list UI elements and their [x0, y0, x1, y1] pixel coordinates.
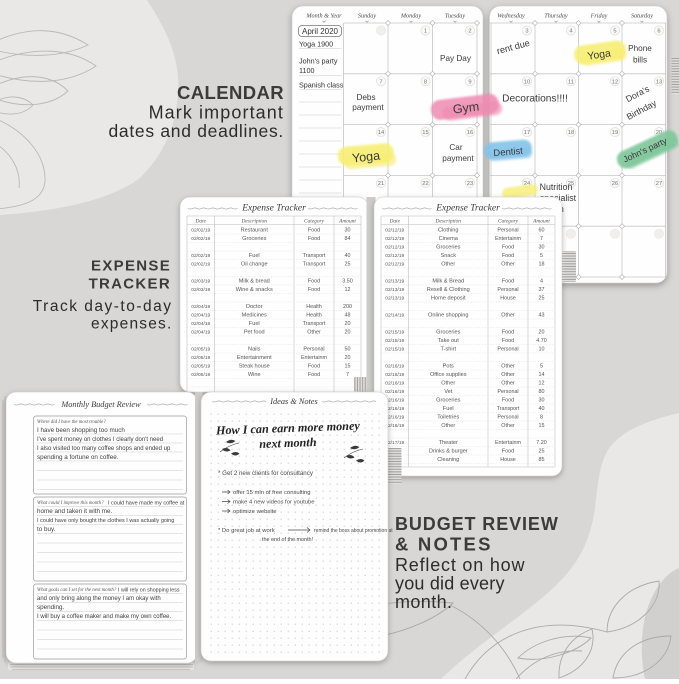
svg-text:4: 4	[540, 279, 543, 285]
svg-text:optimize website: optimize website	[233, 509, 277, 515]
svg-text:House: House	[500, 296, 516, 302]
svg-text:5: 5	[540, 364, 543, 370]
svg-text:Clothing: Clothing	[438, 228, 459, 234]
svg-text:02/16/19: 02/16/19	[385, 372, 404, 378]
svg-text:5: 5	[613, 29, 616, 35]
svg-text:7.20: 7.20	[536, 440, 547, 446]
svg-text:payment: payment	[442, 154, 474, 163]
svg-text:I've spent money on clothes I: I've spent money on clothes I clearly do…	[37, 437, 163, 443]
svg-text:4.70: 4.70	[536, 338, 547, 344]
svg-text:Other: Other	[501, 372, 515, 378]
svg-text:Decorations!!!!: Decorations!!!!	[502, 94, 568, 105]
svg-text:John's party: John's party	[299, 57, 338, 66]
svg-text:I also visited too many coffee: I also visited too many coffee shops and…	[37, 446, 171, 452]
svg-text:BUDGET REVIEW: BUDGET REVIEW	[395, 514, 559, 534]
svg-text:CALENDAR: CALENDAR	[177, 82, 284, 103]
svg-text:02/05/19: 02/05/19	[191, 347, 210, 353]
svg-text:60: 60	[539, 228, 545, 234]
svg-text:02/04/19: 02/04/19	[191, 304, 210, 310]
svg-text:30: 30	[539, 245, 545, 251]
svg-text:Monthly Budget Review: Monthly Budget Review	[60, 400, 141, 409]
svg-text:Entertainment: Entertainment	[237, 355, 272, 361]
svg-text:26: 26	[612, 181, 618, 187]
svg-text:1100: 1100	[299, 66, 314, 75]
svg-text:Debs: Debs	[356, 93, 375, 102]
svg-text:Steak house: Steak house	[239, 364, 270, 370]
svg-text:50: 50	[345, 347, 351, 353]
svg-text:Transport: Transport	[303, 253, 326, 259]
svg-text:House: House	[500, 457, 516, 463]
svg-text:next month: next month	[259, 435, 317, 451]
svg-text:Month & Year: Month & Year	[305, 13, 342, 20]
svg-text:home and taken it with me.: home and taken it with me.	[37, 508, 113, 515]
svg-text:I will buy a coffee maker and: I will buy a coffee maker and make my ow…	[37, 614, 172, 620]
svg-text:spending.: spending.	[37, 604, 65, 611]
svg-text:Other: Other	[501, 313, 515, 319]
svg-text:Other: Other	[307, 330, 321, 336]
svg-text:Health: Health	[306, 313, 322, 319]
svg-text:Description: Description	[241, 218, 268, 224]
svg-text:02/16/19: 02/16/19	[385, 364, 404, 370]
svg-text:02/12/19: 02/12/19	[385, 228, 404, 234]
svg-text:200: 200	[343, 304, 352, 310]
svg-text:02/05/19: 02/05/19	[191, 355, 210, 361]
svg-text:7: 7	[346, 372, 349, 378]
svg-text:Reflect on how: Reflect on how	[395, 555, 525, 575]
svg-text:I will rely on shopping less: I will rely on shopping less	[118, 588, 180, 594]
svg-text:Nails: Nails	[248, 347, 261, 353]
svg-text:20: 20	[345, 321, 351, 327]
svg-text:25: 25	[539, 296, 545, 302]
svg-text:T-shirt: T-shirt	[440, 347, 456, 353]
svg-text:EXPENSE: EXPENSE	[91, 258, 171, 275]
svg-text:Groceries: Groceries	[242, 236, 266, 242]
svg-text:14: 14	[378, 130, 385, 136]
svg-text:02/14/19: 02/14/19	[385, 313, 404, 319]
svg-text:3: 3	[525, 29, 528, 35]
svg-text:13: 13	[656, 79, 662, 85]
svg-text:I have been shopping too much: I have been shopping too much	[37, 427, 125, 434]
svg-text:Resell & Clothing: Resell & Clothing	[427, 287, 470, 293]
svg-text:Expense Tracker: Expense Tracker	[435, 204, 500, 214]
svg-text:Yoga 1900: Yoga 1900	[299, 40, 333, 49]
svg-text:Date: Date	[389, 218, 401, 224]
svg-text:02/13/19: 02/13/19	[385, 287, 404, 293]
svg-text:18: 18	[568, 130, 574, 136]
svg-text:Fuel: Fuel	[443, 406, 454, 412]
svg-text:the end of the month!: the end of the month!	[262, 537, 313, 543]
svg-text:Category: Category	[498, 218, 519, 224]
svg-text:Office supplies: Office supplies	[430, 372, 467, 378]
svg-text:Medicines: Medicines	[242, 313, 267, 319]
svg-text:Other: Other	[501, 364, 515, 370]
svg-text:Yoga: Yoga	[351, 149, 380, 166]
svg-text:Other: Other	[441, 262, 455, 268]
svg-text:02/13/19: 02/13/19	[385, 296, 404, 302]
svg-text:Home deposit: Home deposit	[431, 296, 466, 302]
svg-text:02/02/19: 02/02/19	[191, 253, 210, 259]
svg-text:02/13/19: 02/13/19	[385, 279, 404, 285]
svg-text:spending a fortune on coffee.: spending a fortune on coffee.	[37, 454, 119, 461]
svg-text:& NOTES: & NOTES	[395, 534, 493, 555]
svg-text:Date: Date	[195, 218, 207, 224]
svg-text:Cleaning: Cleaning	[437, 457, 459, 463]
svg-text:23: 23	[467, 181, 473, 187]
svg-text:Theater: Theater	[439, 440, 458, 446]
svg-text:80: 80	[539, 389, 545, 395]
svg-text:Entertainm: Entertainm	[495, 440, 522, 446]
svg-text:02/15/19: 02/15/19	[385, 347, 404, 353]
svg-text:I could have only bought the c: I could have only bought the clothes I w…	[37, 518, 174, 524]
svg-text:Expense Tracker: Expense Tracker	[241, 204, 306, 214]
svg-text:Mark important: Mark important	[149, 103, 284, 123]
svg-text:02/05/19: 02/05/19	[191, 372, 210, 378]
svg-text:19: 19	[612, 130, 618, 136]
svg-text:02/15/19: 02/15/19	[385, 338, 404, 344]
svg-text:Milk & bread: Milk & bread	[239, 279, 270, 285]
svg-text:02/16/19: 02/16/19	[385, 389, 404, 395]
svg-text:Take out: Take out	[438, 338, 460, 344]
svg-text:20: 20	[539, 330, 545, 336]
svg-text:02/05/19: 02/05/19	[191, 364, 210, 370]
svg-text:30: 30	[345, 228, 351, 234]
svg-text:30: 30	[539, 398, 545, 404]
svg-text:Wine & snacks: Wine & snacks	[236, 287, 273, 293]
svg-text:What could I improve this mont: What could I improve this month?	[37, 501, 104, 506]
svg-text:Doctor: Doctor	[246, 304, 263, 310]
svg-text:Personal: Personal	[497, 389, 518, 395]
svg-text:1: 1	[424, 29, 427, 35]
svg-text:20: 20	[345, 355, 351, 361]
svg-text:02/02/19: 02/02/19	[191, 236, 210, 242]
svg-text:Restaurant: Restaurant	[241, 228, 269, 234]
svg-text:85: 85	[539, 457, 545, 463]
svg-text:12: 12	[539, 381, 545, 387]
svg-text:Food: Food	[308, 228, 320, 234]
svg-text:16: 16	[467, 130, 473, 136]
svg-text:Food: Food	[502, 330, 514, 336]
svg-text:02/16/19: 02/16/19	[385, 381, 404, 387]
svg-text:Other: Other	[441, 423, 455, 429]
svg-text:Amount: Amount	[532, 218, 550, 224]
svg-text:Milk & Bread: Milk & Bread	[432, 279, 464, 285]
svg-text:Thursday: Thursday	[544, 13, 568, 20]
svg-text:Wednesday: Wednesday	[497, 13, 525, 20]
svg-text:Food: Food	[502, 245, 514, 251]
svg-text:Food: Food	[308, 364, 320, 370]
svg-text:9: 9	[468, 79, 471, 85]
svg-text:25: 25	[345, 262, 351, 268]
svg-text:Transport: Transport	[303, 262, 326, 268]
svg-text:7: 7	[379, 79, 382, 85]
svg-text:6: 6	[657, 29, 660, 35]
svg-text:Sunday: Sunday	[358, 13, 376, 20]
svg-text:Amount: Amount	[338, 218, 356, 224]
svg-text:Personal: Personal	[497, 228, 518, 234]
svg-text:3.50: 3.50	[342, 279, 353, 285]
svg-text:TRACKER: TRACKER	[89, 276, 171, 293]
svg-text:offer 15 min of free consultin: offer 15 min of free consulting	[233, 490, 311, 496]
svg-text:22: 22	[422, 181, 428, 187]
svg-text:Groceries: Groceries	[436, 398, 460, 404]
svg-text:Toiletries: Toiletries	[437, 415, 459, 421]
svg-text:Other: Other	[501, 262, 515, 268]
svg-text:Cinema: Cinema	[439, 236, 459, 242]
svg-text:Online shopping: Online shopping	[428, 313, 468, 319]
svg-text:20: 20	[345, 330, 351, 336]
svg-text:40: 40	[539, 406, 545, 412]
svg-text:Food: Food	[308, 287, 320, 293]
svg-text:Other: Other	[501, 423, 515, 429]
svg-text:40: 40	[345, 253, 351, 259]
svg-text:and only bring along the money: and only bring along the money I am okay…	[37, 596, 161, 602]
svg-text:14: 14	[539, 372, 545, 378]
svg-text:make 4 new videos for youtube: make 4 new videos for youtube	[233, 500, 315, 506]
svg-text:11: 11	[568, 79, 574, 85]
svg-text:02/03/19: 02/03/19	[191, 279, 210, 285]
svg-text:15: 15	[422, 130, 428, 136]
svg-text:* Get 2 new clients for consul: * Get 2 new clients for consultancy	[218, 470, 314, 477]
svg-text:Personal: Personal	[497, 287, 518, 293]
svg-text:15: 15	[345, 364, 351, 370]
svg-text:Vet: Vet	[444, 389, 453, 395]
svg-text:Groceries: Groceries	[436, 245, 460, 251]
svg-text:you did every: you did every	[395, 574, 505, 594]
svg-text:15: 15	[539, 423, 545, 429]
svg-text:Category: Category	[304, 218, 325, 224]
svg-text:Saturday: Saturday	[631, 13, 653, 20]
svg-text:payment: payment	[352, 103, 384, 112]
svg-text:02/12/19: 02/12/19	[385, 262, 404, 268]
svg-text:Food: Food	[502, 398, 514, 404]
svg-text:02/04/19: 02/04/19	[191, 321, 210, 327]
svg-text:Other: Other	[501, 381, 515, 387]
svg-text:43: 43	[539, 313, 545, 319]
svg-text:Personal: Personal	[303, 347, 324, 353]
svg-text:Tuesday: Tuesday	[445, 13, 466, 20]
svg-text:remind the boss about promotio: remind the boss about promotion at	[314, 528, 393, 534]
svg-text:02/03/19: 02/03/19	[191, 287, 210, 293]
svg-text:I could have made my coffee at: I could have made my coffee at	[108, 501, 185, 507]
svg-text:25: 25	[539, 449, 545, 455]
svg-text:Entertainm: Entertainm	[495, 236, 522, 242]
svg-text:Transport: Transport	[303, 321, 326, 327]
svg-text:expenses.: expenses.	[91, 316, 172, 333]
svg-text:Description: Description	[435, 218, 462, 224]
svg-text:Drinks & burger: Drinks & burger	[429, 449, 468, 455]
svg-text:Friday: Friday	[590, 13, 608, 20]
svg-text:2: 2	[468, 29, 471, 35]
svg-text:Transport: Transport	[497, 406, 520, 412]
svg-text:Groceries: Groceries	[436, 330, 460, 336]
svg-text:Food: Food	[308, 372, 320, 378]
svg-text:Monday: Monday	[400, 13, 422, 20]
svg-text:02/12/19: 02/12/19	[385, 253, 404, 259]
svg-text:dates and deadlines.: dates and deadlines.	[108, 121, 284, 141]
svg-text:Food: Food	[308, 236, 320, 242]
svg-text:Where did I have the most trou: Where did I have the most trouble?	[37, 420, 106, 425]
svg-text:8: 8	[540, 415, 543, 421]
svg-text:5: 5	[540, 253, 543, 259]
svg-text:Phone: Phone	[628, 44, 652, 53]
svg-text:02/12/19: 02/12/19	[385, 236, 404, 242]
svg-text:10: 10	[524, 79, 530, 85]
svg-text:Snack: Snack	[440, 253, 456, 259]
svg-text:Food: Food	[502, 279, 514, 285]
svg-text:21: 21	[378, 181, 384, 187]
svg-text:Personal: Personal	[497, 415, 518, 421]
svg-text:bills: bills	[633, 56, 647, 65]
svg-text:Nutrition: Nutrition	[540, 182, 573, 192]
svg-text:12: 12	[345, 287, 351, 293]
svg-text:7: 7	[540, 236, 543, 242]
svg-text:48: 48	[345, 313, 351, 319]
svg-text:02/02/19: 02/02/19	[191, 262, 210, 268]
svg-text:84: 84	[345, 236, 351, 242]
svg-text:02/15/19: 02/15/19	[385, 330, 404, 336]
svg-text:8: 8	[424, 79, 427, 85]
svg-text:02/12/19: 02/12/19	[385, 245, 404, 251]
svg-text:Ideas & Notes: Ideas & Notes	[269, 397, 317, 406]
svg-text:Pet food: Pet food	[244, 330, 265, 336]
svg-text:* Do great job at work: * Do great job at work	[218, 528, 275, 534]
svg-text:Personal: Personal	[497, 347, 518, 353]
svg-text:month.: month.	[395, 592, 452, 612]
svg-text:Track day-to-day: Track day-to-day	[33, 298, 173, 315]
svg-text:Spanish class: Spanish class	[299, 81, 344, 90]
svg-text:Car: Car	[449, 143, 462, 152]
svg-text:What goals can I set for the n: What goals can I set for the next month?	[37, 588, 117, 593]
svg-text:Pay Day: Pay Day	[440, 54, 472, 63]
svg-text:02/04/19: 02/04/19	[191, 330, 210, 336]
svg-text:Wine: Wine	[248, 372, 261, 378]
svg-text:Pots: Pots	[443, 364, 454, 370]
svg-text:18: 18	[539, 262, 545, 268]
svg-text:to buy.: to buy.	[37, 526, 56, 533]
svg-text:Oil change: Oil change	[241, 262, 268, 268]
svg-text:Fuel: Fuel	[249, 321, 260, 327]
svg-text:10: 10	[539, 347, 545, 353]
svg-text:Health: Health	[306, 304, 322, 310]
svg-text:02/04/19: 02/04/19	[191, 313, 210, 319]
svg-text:02/02/19: 02/02/19	[191, 228, 210, 234]
svg-text:Entertainm: Entertainm	[301, 355, 328, 361]
svg-text:April 2020: April 2020	[302, 27, 339, 36]
svg-text:Food: Food	[502, 449, 514, 455]
svg-text:27: 27	[656, 181, 662, 187]
svg-text:Food: Food	[502, 338, 514, 344]
svg-text:Other: Other	[441, 381, 455, 387]
svg-text:37: 37	[539, 287, 545, 293]
svg-text:Food: Food	[502, 253, 514, 259]
svg-text:Fuel: Fuel	[249, 253, 260, 259]
svg-text:17: 17	[524, 130, 530, 136]
svg-text:Food: Food	[308, 279, 320, 285]
svg-text:12: 12	[612, 79, 618, 85]
